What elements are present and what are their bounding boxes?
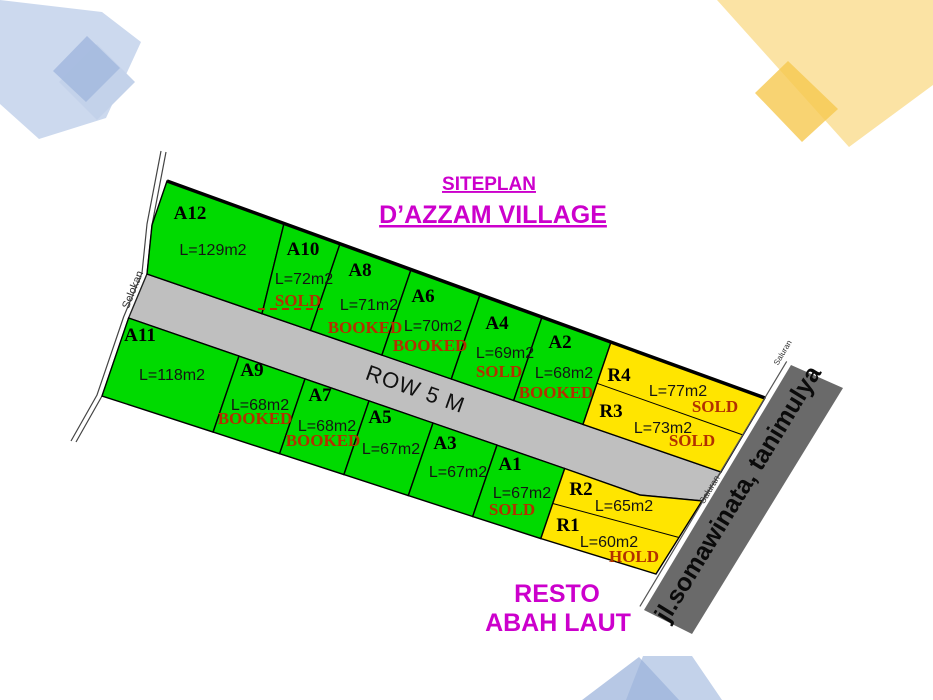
svg-text:L=72m2: L=72m2 (275, 271, 333, 288)
svg-text:R1: R1 (556, 515, 579, 536)
svg-text:A9: A9 (240, 360, 263, 381)
svg-text:L=129m2: L=129m2 (179, 242, 246, 259)
svg-text:BOOKED: BOOKED (218, 409, 293, 428)
svg-text:L=65m2: L=65m2 (595, 498, 653, 515)
svg-text:A5: A5 (368, 407, 391, 428)
svg-text:R2: R2 (569, 479, 592, 500)
svg-text:A6: A6 (411, 286, 434, 307)
svg-text:BOOKED: BOOKED (393, 336, 468, 355)
svg-text:A4: A4 (485, 313, 509, 334)
svg-text:R3: R3 (599, 401, 622, 422)
svg-text:SOLD: SOLD (489, 500, 535, 519)
svg-text:SOLD: SOLD (692, 397, 738, 416)
svg-text:BOOKED: BOOKED (286, 431, 361, 450)
svg-text:A10: A10 (287, 239, 320, 260)
svg-text:BOOKED: BOOKED (328, 318, 403, 337)
svg-text:A11: A11 (124, 325, 156, 346)
svg-text:RESTO: RESTO (514, 580, 600, 608)
svg-text:L=70m2: L=70m2 (404, 318, 462, 335)
svg-text:A1: A1 (498, 454, 521, 475)
svg-text:HOLD: HOLD (609, 547, 659, 566)
svg-text:L=68m2: L=68m2 (535, 365, 593, 382)
svg-text:A12: A12 (174, 203, 207, 224)
svg-text:A3: A3 (433, 433, 456, 454)
svg-text:L=69m2: L=69m2 (476, 345, 534, 362)
svg-text:A2: A2 (548, 332, 571, 353)
svg-text:A7: A7 (308, 385, 332, 406)
svg-text:SOLD: SOLD (275, 291, 321, 310)
svg-text:SOLD: SOLD (669, 431, 715, 450)
svg-text:SITEPLAN: SITEPLAN (442, 174, 536, 195)
svg-text:A8: A8 (348, 260, 371, 281)
svg-text:ABAH LAUT: ABAH LAUT (485, 609, 631, 637)
svg-text:L=67m2: L=67m2 (429, 464, 487, 481)
svg-text:L=118m2: L=118m2 (139, 367, 205, 384)
svg-text:L=71m2: L=71m2 (340, 297, 398, 314)
svg-text:SOLD: SOLD (476, 362, 522, 381)
svg-text:BOOKED: BOOKED (519, 383, 594, 402)
svg-text:R4: R4 (607, 365, 631, 386)
svg-text:D’AZZAM VILLAGE: D’AZZAM VILLAGE (379, 201, 607, 229)
svg-text:L=67m2: L=67m2 (362, 441, 420, 458)
